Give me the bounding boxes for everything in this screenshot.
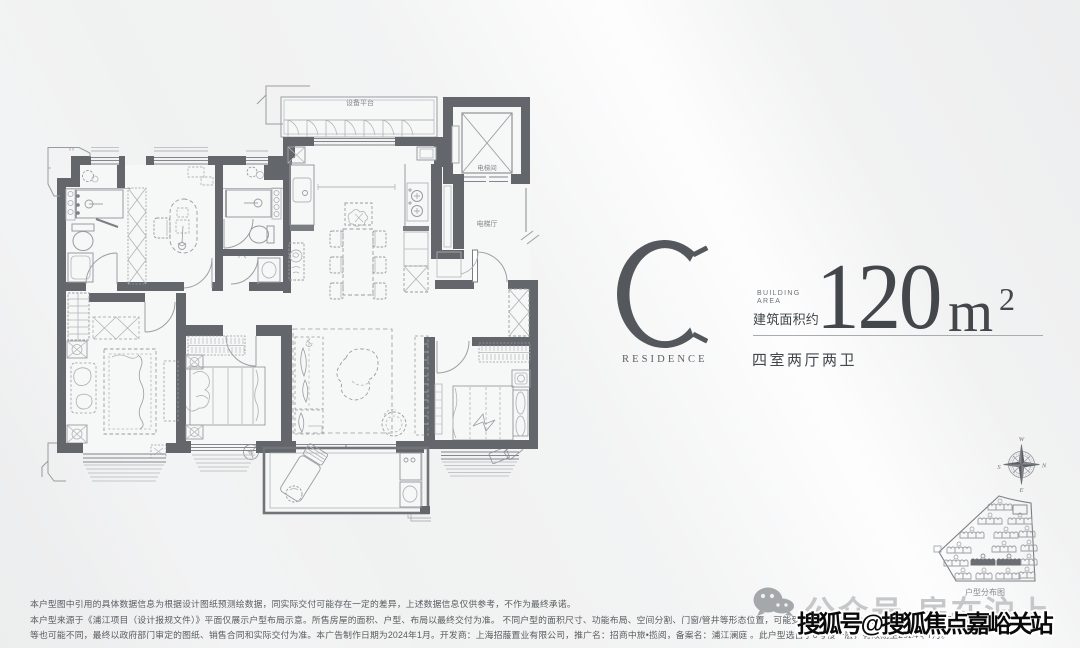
svg-text:搜狐号@搜狐焦点嘉峪关站: 搜狐号@搜狐焦点嘉峪关站 (797, 610, 1054, 638)
